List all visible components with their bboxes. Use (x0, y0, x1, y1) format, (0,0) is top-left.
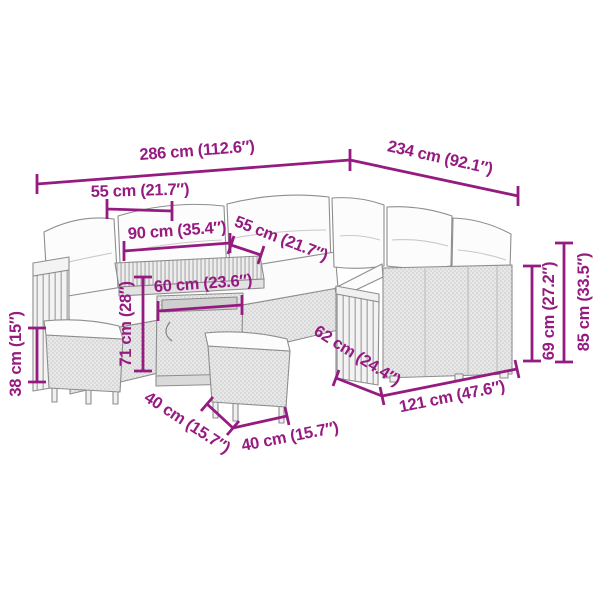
sofa-front-right (383, 265, 512, 378)
dimension-diagram: 286 cm (112.6″) 234 cm (92.1″) 55 cm (21… (0, 0, 600, 600)
back-cushions-right (332, 198, 511, 270)
dim-seat-width-left-label: 55 cm (21.7″) (91, 181, 190, 200)
stool-right (205, 332, 290, 423)
furniture-illustration (0, 0, 600, 600)
stool-left (44, 320, 123, 404)
dim-arm-height-label: 69 cm (27.2″) (541, 262, 558, 360)
stool-right-body (208, 346, 290, 407)
dim-back-height-label: 85 cm (33.5″) (576, 253, 593, 351)
dim-table-height-label: 71 cm (28″) (118, 281, 135, 366)
dim-stool-height-label: 38 cm (15″) (8, 311, 25, 396)
stool-left-body (46, 335, 123, 392)
